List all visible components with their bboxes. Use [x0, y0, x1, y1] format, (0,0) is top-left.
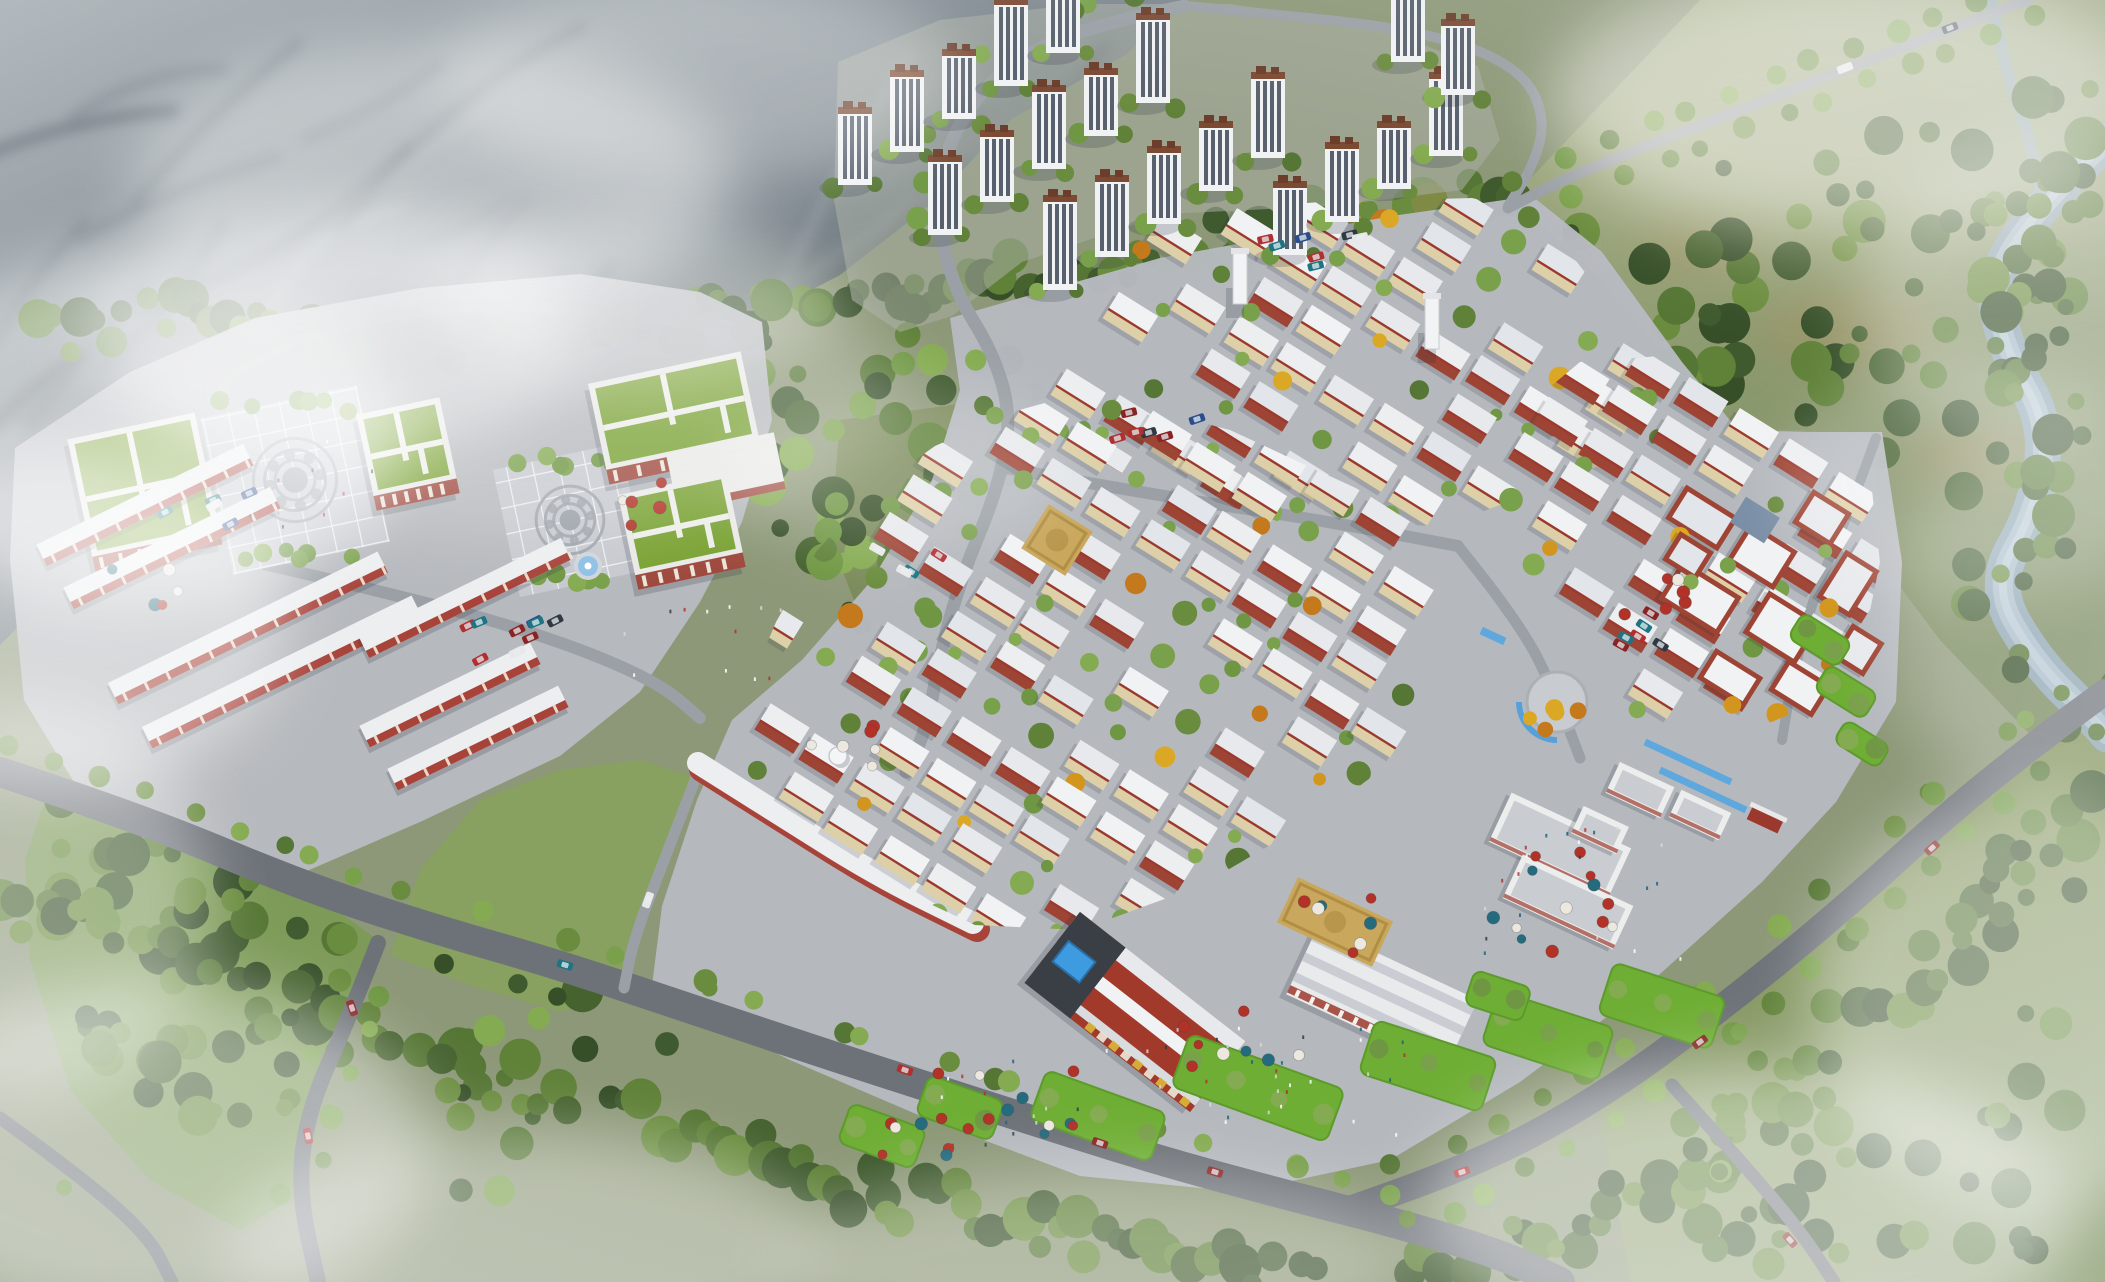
aerial-masterplan-render — [0, 0, 2105, 1282]
scene-svg — [0, 0, 2105, 1282]
vignette — [0, 0, 2105, 1282]
